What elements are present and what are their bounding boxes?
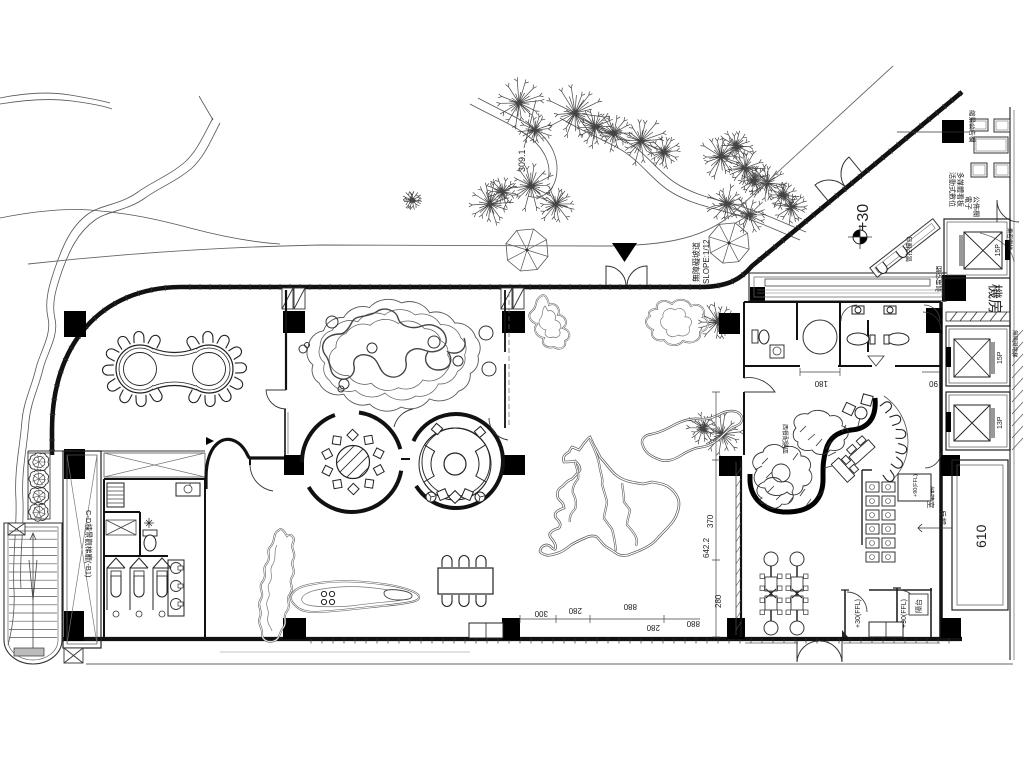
svg-text:300: 300 <box>534 609 548 618</box>
svg-text:無障礙坡道: 無障礙坡道 <box>691 242 701 282</box>
svg-text:370: 370 <box>706 514 715 528</box>
svg-text:公佈欄: 公佈欄 <box>972 196 981 217</box>
svg-text:280: 280 <box>568 606 582 615</box>
svg-text:15P: 15P <box>995 244 1002 257</box>
svg-text:642.2: 642.2 <box>702 537 711 558</box>
svg-text:180: 180 <box>814 379 828 388</box>
svg-text:280: 280 <box>714 594 723 608</box>
svg-text:880: 880 <box>686 619 700 628</box>
svg-text:管控檯台: 管控檯台 <box>904 236 913 262</box>
svg-text:乘客電梯: 乘客電梯 <box>1006 228 1014 251</box>
svg-text:弱電空間: 弱電空間 <box>934 266 943 292</box>
svg-text:C-D棟景觀梯廳(-B1): C-D棟景觀梯廳(-B1) <box>84 510 94 578</box>
svg-text:90: 90 <box>929 379 938 388</box>
svg-text:電子: 電子 <box>964 196 972 210</box>
svg-text:反樑: 反樑 <box>938 510 948 525</box>
svg-text:SLOPE:1/12: SLOPE:1/12 <box>702 239 711 284</box>
svg-text:13P: 13P <box>997 416 1004 429</box>
svg-text:隔台: 隔台 <box>914 599 923 613</box>
svg-text:多媒體看板: 多媒體看板 <box>956 172 965 207</box>
svg-text:309.1: 309.1 <box>517 149 527 172</box>
svg-text:縮景公告欄: 縮景公告欄 <box>968 110 977 143</box>
svg-text:15P: 15P <box>997 351 1004 364</box>
svg-text:+90(FFL): +90(FFL) <box>913 474 919 497</box>
svg-text:+30(FFL): +30(FFL) <box>855 599 862 628</box>
svg-text:西餐配膳區: 西餐配膳區 <box>781 424 789 454</box>
svg-text:活動式數位: 活動式數位 <box>948 172 957 207</box>
svg-text:280: 280 <box>646 623 660 632</box>
svg-text:880: 880 <box>623 602 637 611</box>
svg-text:機房: 機房 <box>986 284 1003 314</box>
svg-text:610: 610 <box>973 524 989 548</box>
svg-text:+30: +30 <box>855 204 872 231</box>
